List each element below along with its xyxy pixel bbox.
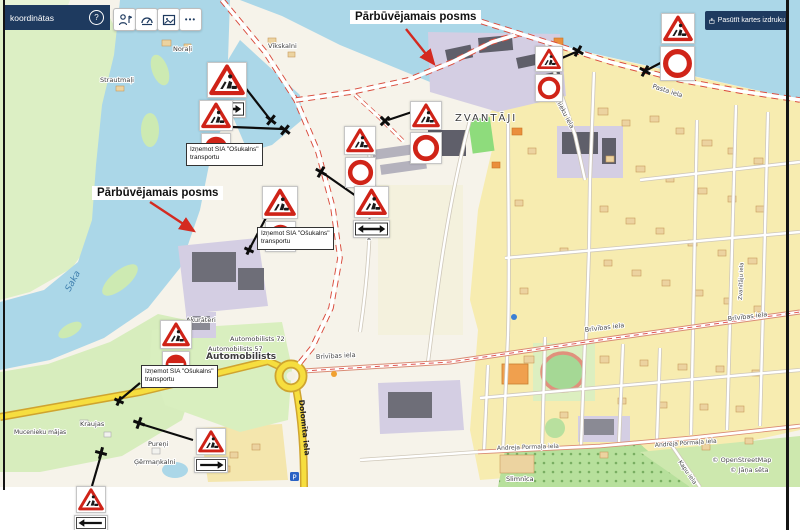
roadworks-sign-icon [199, 100, 233, 131]
print-export-icon [709, 16, 715, 26]
segment-label-top: Pārbūvējamais posms [350, 10, 481, 24]
sign-group-karklu [353, 186, 390, 238]
coordinates-label: koordinātas [10, 13, 54, 23]
sign-group-center-east [410, 101, 442, 164]
segment-label-left: Pārbūvējamais posms [92, 186, 223, 200]
more-tools-button[interactable]: ••• [179, 8, 202, 31]
place-label: Pureņi [148, 440, 169, 449]
poi-dot-blue [511, 314, 517, 320]
exception-note: Izņemot SIA "Ošukalns" transportu [186, 143, 263, 166]
place-label: Automobilists 57 [208, 345, 263, 353]
sign-group-southwest-road-east [194, 428, 228, 473]
exception-note: Izņemot SIA "Ošukalns" transportu [141, 365, 218, 388]
gauge-tool-button[interactable] [135, 8, 158, 31]
roadworks-sign-icon [262, 186, 298, 219]
place-label: Ģērmaņkalni [134, 458, 176, 467]
district-label-zvantaji: ZVANTĀJI [455, 111, 517, 124]
help-icon[interactable]: ? [89, 10, 104, 25]
sign-group-southwest-road-west [74, 486, 108, 530]
gauge-icon [140, 13, 154, 27]
no-vehicles-sign-icon [535, 74, 563, 102]
person-pin-icon [118, 13, 132, 27]
route-person-tool-button[interactable] [113, 8, 136, 31]
roadworks-sign-icon [344, 126, 376, 155]
roadworks-sign-icon [196, 428, 226, 455]
roadworks-sign-icon [661, 13, 695, 44]
place-label: Slimnīca [506, 475, 534, 483]
frame-line-left [3, 0, 5, 490]
attribution-osm: © OpenStreetMap [712, 456, 771, 464]
place-label: Vīkskalni [268, 42, 297, 50]
arrow-right-sign-icon [194, 457, 228, 473]
sign-group-shore-west [535, 46, 563, 102]
place-label: Noraļi [173, 45, 192, 54]
exception-note: Izņemot SIA "Ošukalns" transportu [257, 227, 334, 250]
sign-group-center-west [344, 126, 376, 188]
coordinates-bar[interactable]: koordinātas ? [4, 5, 110, 30]
no-vehicles-sign-icon [660, 46, 695, 81]
no-vehicles-sign-icon [345, 157, 376, 188]
poi-dot-orange [331, 371, 337, 377]
roadworks-sign-icon [354, 186, 389, 218]
roadworks-sign-icon [535, 46, 563, 72]
place-label: Automobilists 72 [230, 335, 285, 343]
place-label: Mucenieku mājas [14, 429, 66, 436]
two-way-traffic-sign-icon [353, 220, 390, 238]
order-map-print-label: Pasūtīt kartes izdruku [718, 17, 785, 24]
place-label: Strautmaļi [100, 76, 134, 85]
map-application-window: P ZVANTĀJI Saka Automobilists Automobili… [0, 0, 800, 530]
attribution-janis-seta: © Jāņa sēta [730, 466, 769, 475]
order-map-print-button[interactable]: Pasūtīt kartes izdruku [705, 11, 789, 30]
no-vehicles-sign-icon [410, 132, 442, 164]
image-export-tool-button[interactable] [157, 8, 180, 31]
parking-icon: P [290, 472, 299, 482]
place-label: Automobilists [206, 352, 276, 362]
sign-group-shore-east [660, 13, 695, 81]
roadworks-sign-icon [410, 101, 442, 130]
image-icon [162, 13, 176, 27]
roadworks-sign-icon [160, 320, 192, 349]
place-label: Kraujas [80, 420, 105, 428]
frame-line-right [786, 0, 789, 530]
arrow-left-sign-icon [74, 515, 108, 530]
roadworks-sign-icon [76, 486, 106, 513]
svg-text:P: P [292, 474, 296, 482]
roadworks-sign-icon [207, 62, 247, 98]
